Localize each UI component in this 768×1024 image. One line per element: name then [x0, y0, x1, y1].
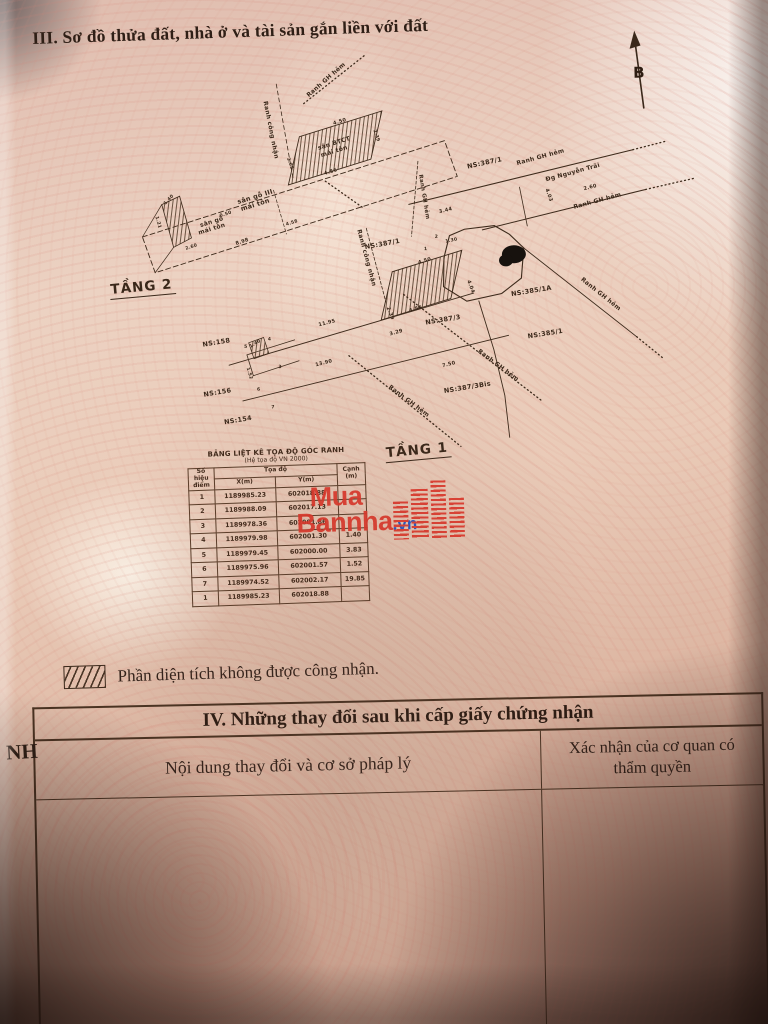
point-cell: 7	[192, 577, 218, 592]
map-label: NS:156	[203, 386, 232, 398]
map-label: 4.58	[285, 218, 299, 228]
map-label: NS:385/1A	[511, 284, 553, 298]
hatch-swatch-icon	[63, 665, 106, 689]
map-label: NS:387/1	[466, 155, 503, 170]
section4-col-left-header: Nội dung thay đổi và cơ sở pháp lý	[35, 731, 541, 800]
map-label: 2.60	[185, 242, 199, 252]
document-photo: III. Sơ đồ thửa đất, nhà ở và tài sản gắ…	[0, 0, 768, 1024]
map-label: Ranh GH hẻm	[387, 384, 431, 419]
map-label: NS:154	[224, 414, 253, 426]
edge-cell: 1.52	[340, 557, 368, 572]
site-watermark: Mua Bannha.vn	[295, 477, 477, 548]
map-label: Ranh GH hẻm	[417, 174, 431, 220]
map-label: 1.21	[154, 216, 163, 229]
map-label: NS:158	[202, 336, 231, 348]
x-cell: 1189985.23	[218, 589, 279, 606]
col-point-header: Số hiệu điểm	[188, 468, 215, 491]
map-label: 3	[278, 364, 282, 370]
floor2-alley-dotted2	[325, 180, 364, 209]
map-label: 1.30	[445, 236, 458, 244]
map-label: 0.50	[219, 210, 233, 220]
map-label: Ranh GH hẻm	[305, 61, 347, 99]
map-label: 3.44	[438, 206, 453, 215]
map-label: 5	[244, 344, 248, 350]
map-label: 6	[257, 387, 261, 393]
point-cell: 5	[191, 548, 217, 563]
cadastral-map: sân BTCTmái tônsân gỗ IIImái tônsân gỗmá…	[0, 0, 767, 478]
road-line-2	[482, 189, 647, 229]
legend-text: Phần diện tích không được công nhận.	[117, 658, 379, 686]
map-label: NS:387/3Bis	[443, 379, 491, 394]
map-label: Ranh GH hẻm	[579, 276, 622, 312]
point-cell: 4	[190, 533, 216, 548]
map-label: NS:385/1	[527, 327, 564, 341]
map-label: Ranh GH hẻm	[516, 147, 565, 167]
map-label: NS:387/1	[364, 237, 401, 251]
edge-cell: 19.85	[341, 571, 369, 586]
map-label: 8.98	[235, 237, 250, 247]
point-cell: 1	[189, 490, 215, 505]
map-label: Đg Nguyễn Trãi	[545, 162, 601, 183]
map-label: 3.29	[389, 328, 404, 337]
y-cell: 602018.88	[279, 587, 342, 604]
section4-left-cell	[36, 790, 546, 1024]
map-label: Ranh GH hẻm	[476, 348, 520, 383]
map-label: 4	[268, 336, 272, 342]
map-label: 11.95	[318, 318, 336, 328]
map-label: 7.50	[442, 360, 457, 369]
map-label: 4.04	[465, 279, 476, 294]
point-cell: 1	[192, 591, 218, 606]
margin-text-fragment: NH	[6, 739, 39, 766]
map-label: 7	[271, 404, 275, 410]
section4-right-cell	[541, 785, 768, 1024]
legend: Phần diện tích không được công nhận.	[63, 657, 379, 689]
point-cell: 3	[190, 519, 216, 534]
map-label: 13.90	[315, 358, 333, 368]
point-cell: 6	[191, 562, 217, 577]
map-label: 2.60	[583, 183, 598, 192]
section4-col-right-header: Xác nhận của cơ quan có thẩm quyền	[540, 726, 763, 789]
certificate-sheet: III. Sơ đồ thửa đất, nhà ở và tài sản gắ…	[0, 0, 768, 1024]
alley-boundary-dashed	[410, 161, 420, 236]
point-cell: 2	[189, 504, 215, 519]
section4-table: IV. Những thay đổi sau khi cấp giấy chứn…	[32, 692, 768, 1024]
map-label: 1	[424, 246, 428, 252]
edge-cell	[341, 586, 369, 601]
map-label: Ranh công nhận	[262, 101, 280, 160]
watermark-buildings-icon	[392, 479, 472, 539]
floor2-divider-dashed	[273, 190, 286, 234]
map-label: Ranh GH hẻm	[573, 191, 622, 211]
map-label: 4.03	[544, 188, 554, 203]
map-label: 2	[435, 234, 439, 240]
